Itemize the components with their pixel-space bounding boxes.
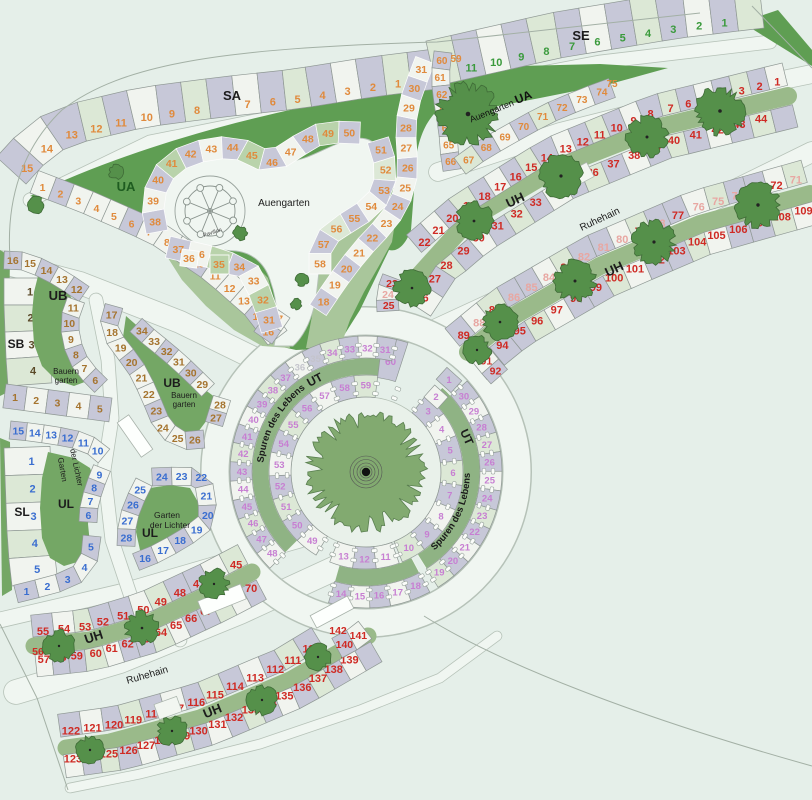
svg-text:18: 18 [318, 296, 330, 308]
svg-text:27: 27 [482, 440, 493, 451]
svg-text:70: 70 [518, 122, 530, 133]
svg-text:52: 52 [275, 482, 286, 493]
svg-text:12: 12 [62, 433, 74, 445]
svg-text:4: 4 [93, 203, 99, 215]
svg-text:115: 115 [206, 690, 224, 702]
svg-text:111: 111 [284, 655, 301, 667]
svg-text:18: 18 [410, 581, 421, 592]
svg-text:66: 66 [185, 613, 197, 625]
svg-text:121: 121 [83, 723, 101, 735]
svg-text:39: 39 [147, 195, 159, 207]
svg-text:27: 27 [122, 516, 134, 528]
svg-text:16: 16 [7, 255, 19, 267]
svg-text:58: 58 [314, 259, 326, 271]
svg-text:56: 56 [302, 403, 313, 414]
svg-text:38: 38 [149, 216, 161, 228]
svg-text:7: 7 [81, 363, 87, 375]
svg-text:27: 27 [210, 412, 222, 424]
svg-text:29: 29 [469, 406, 480, 417]
svg-text:4: 4 [439, 425, 445, 436]
svg-text:2: 2 [756, 81, 762, 93]
svg-text:62: 62 [436, 90, 448, 101]
svg-text:16: 16 [510, 172, 522, 184]
svg-text:37: 37 [280, 373, 291, 384]
svg-text:77: 77 [672, 210, 684, 222]
svg-text:6: 6 [129, 219, 135, 231]
svg-text:73: 73 [576, 95, 588, 106]
svg-text:41: 41 [166, 158, 178, 170]
svg-text:48: 48 [267, 549, 278, 560]
svg-text:45: 45 [230, 560, 242, 572]
svg-text:120: 120 [105, 720, 123, 732]
svg-text:132: 132 [225, 712, 243, 724]
svg-text:8: 8 [91, 482, 97, 494]
svg-text:135: 135 [275, 691, 293, 703]
svg-text:10: 10 [611, 122, 623, 134]
svg-text:72: 72 [770, 180, 782, 192]
svg-text:19: 19 [191, 524, 203, 536]
svg-text:12: 12 [90, 123, 102, 135]
svg-text:3: 3 [28, 340, 34, 352]
svg-text:41: 41 [690, 130, 702, 142]
svg-text:11: 11 [465, 63, 477, 75]
svg-text:13: 13 [45, 430, 57, 442]
svg-text:26: 26 [484, 458, 495, 469]
svg-text:33: 33 [530, 197, 542, 209]
svg-text:5: 5 [97, 403, 103, 415]
svg-text:106: 106 [729, 224, 747, 236]
svg-text:92: 92 [490, 366, 502, 378]
svg-text:7: 7 [667, 103, 673, 115]
svg-text:3: 3 [425, 406, 430, 417]
svg-text:24: 24 [156, 471, 168, 483]
svg-text:21: 21 [432, 225, 444, 237]
svg-text:60: 60 [90, 648, 102, 660]
svg-text:28: 28 [400, 122, 412, 134]
svg-text:7: 7 [245, 99, 251, 111]
svg-text:2: 2 [696, 21, 702, 33]
svg-text:113: 113 [246, 673, 264, 685]
svg-text:61: 61 [435, 73, 447, 84]
svg-text:1: 1 [12, 392, 18, 404]
svg-text:29: 29 [196, 379, 208, 391]
svg-text:24: 24 [392, 201, 404, 213]
svg-text:20: 20 [202, 510, 214, 522]
svg-text:30: 30 [459, 391, 470, 402]
svg-text:1: 1 [395, 79, 401, 91]
svg-text:2: 2 [370, 82, 376, 94]
svg-text:45: 45 [246, 150, 258, 162]
svg-text:17: 17 [157, 545, 169, 557]
svg-text:67: 67 [463, 155, 475, 166]
svg-text:126: 126 [119, 745, 137, 757]
svg-text:1: 1 [446, 375, 452, 386]
svg-text:10: 10 [92, 446, 104, 458]
svg-text:30: 30 [185, 368, 197, 380]
svg-text:70: 70 [245, 583, 257, 595]
svg-text:4: 4 [76, 401, 82, 413]
svg-text:8: 8 [438, 512, 443, 523]
svg-text:32: 32 [257, 294, 269, 306]
svg-text:114: 114 [226, 681, 245, 693]
svg-text:1: 1 [24, 586, 30, 598]
svg-text:26: 26 [127, 500, 139, 512]
svg-text:26: 26 [402, 163, 414, 175]
svg-text:garten: garten [55, 376, 78, 385]
svg-text:13: 13 [56, 274, 68, 286]
svg-text:UB: UB [163, 376, 181, 390]
svg-text:11: 11 [594, 129, 606, 141]
svg-text:17: 17 [106, 310, 118, 322]
svg-text:51: 51 [281, 502, 292, 513]
svg-text:96: 96 [531, 316, 543, 328]
svg-text:1: 1 [722, 18, 728, 30]
svg-text:SE: SE [572, 28, 590, 43]
svg-text:11: 11 [381, 552, 392, 563]
svg-text:Bauern: Bauern [171, 391, 197, 400]
svg-text:37: 37 [607, 158, 619, 170]
svg-text:25: 25 [172, 433, 184, 445]
svg-text:55: 55 [288, 420, 299, 431]
svg-text:97: 97 [551, 304, 563, 316]
svg-text:34: 34 [233, 262, 245, 274]
svg-text:20: 20 [446, 213, 458, 225]
svg-text:3: 3 [344, 86, 350, 98]
svg-text:9: 9 [68, 334, 74, 346]
svg-text:57: 57 [318, 239, 330, 251]
svg-text:36: 36 [295, 363, 306, 374]
svg-text:17: 17 [494, 181, 506, 193]
svg-text:28: 28 [440, 260, 452, 272]
svg-text:18: 18 [478, 191, 490, 203]
svg-text:71: 71 [790, 174, 802, 186]
svg-text:28: 28 [121, 532, 133, 544]
svg-text:19: 19 [434, 568, 445, 579]
svg-text:28: 28 [476, 423, 487, 434]
svg-text:SA: SA [223, 88, 242, 103]
svg-text:6: 6 [685, 99, 691, 111]
svg-text:31: 31 [415, 64, 427, 76]
svg-text:25: 25 [484, 476, 495, 487]
svg-text:33: 33 [148, 336, 160, 348]
svg-text:27: 27 [429, 274, 441, 286]
svg-text:48: 48 [302, 134, 314, 146]
svg-text:58: 58 [339, 383, 350, 394]
svg-text:43: 43 [237, 467, 248, 478]
svg-text:41: 41 [242, 432, 253, 443]
svg-text:6: 6 [85, 510, 91, 522]
svg-text:4: 4 [30, 366, 37, 378]
svg-text:15: 15 [525, 162, 537, 174]
svg-text:32: 32 [161, 346, 173, 358]
svg-text:23: 23 [477, 511, 488, 522]
svg-text:3: 3 [670, 24, 676, 36]
svg-text:34: 34 [136, 325, 148, 337]
svg-text:8: 8 [73, 349, 79, 361]
svg-text:18: 18 [174, 535, 186, 547]
svg-text:13: 13 [560, 143, 572, 155]
svg-text:127: 127 [137, 740, 155, 752]
svg-text:51: 51 [375, 145, 387, 157]
svg-text:4: 4 [319, 90, 326, 102]
svg-text:SB: SB [8, 337, 25, 351]
svg-text:23: 23 [150, 406, 162, 418]
svg-text:2: 2 [57, 189, 63, 201]
svg-text:8: 8 [194, 105, 200, 117]
svg-text:24: 24 [482, 494, 493, 505]
svg-text:15: 15 [24, 258, 36, 270]
svg-text:2: 2 [44, 581, 50, 593]
svg-text:42: 42 [238, 449, 249, 460]
svg-text:119: 119 [124, 715, 142, 727]
svg-text:10: 10 [63, 318, 75, 330]
svg-text:9: 9 [424, 530, 429, 541]
svg-text:9: 9 [169, 109, 175, 121]
svg-text:1: 1 [28, 456, 34, 468]
svg-text:3: 3 [30, 511, 36, 523]
svg-text:69: 69 [499, 133, 511, 144]
svg-text:19: 19 [329, 280, 341, 292]
svg-text:7: 7 [87, 496, 93, 508]
svg-text:32: 32 [362, 343, 373, 354]
svg-text:16: 16 [139, 553, 151, 565]
svg-text:10: 10 [141, 112, 153, 124]
svg-text:27: 27 [400, 143, 412, 155]
svg-text:21: 21 [201, 490, 213, 502]
svg-text:45: 45 [242, 502, 253, 513]
svg-text:14: 14 [29, 427, 41, 439]
svg-text:31: 31 [173, 357, 185, 369]
svg-text:1: 1 [40, 182, 46, 194]
svg-text:4: 4 [32, 538, 39, 550]
svg-text:21: 21 [136, 372, 148, 384]
svg-text:1: 1 [27, 287, 33, 299]
svg-text:6: 6 [450, 468, 455, 479]
svg-text:72: 72 [556, 103, 568, 114]
svg-text:3: 3 [65, 574, 71, 586]
svg-text:14: 14 [41, 144, 54, 156]
svg-text:46: 46 [266, 157, 278, 169]
svg-text:105: 105 [707, 230, 725, 242]
svg-text:21: 21 [353, 248, 365, 260]
svg-text:59: 59 [450, 54, 462, 65]
svg-text:142: 142 [329, 625, 347, 637]
svg-text:81: 81 [598, 242, 610, 254]
svg-text:141: 141 [350, 630, 368, 642]
svg-text:36: 36 [183, 253, 195, 265]
svg-text:garten: garten [173, 400, 196, 409]
svg-text:9: 9 [518, 51, 524, 63]
svg-text:131: 131 [208, 719, 226, 731]
svg-text:53: 53 [274, 460, 285, 471]
svg-text:76: 76 [693, 202, 705, 214]
svg-text:24: 24 [382, 289, 394, 301]
svg-text:UL: UL [58, 497, 74, 511]
svg-text:38: 38 [268, 386, 279, 397]
svg-text:7: 7 [447, 491, 452, 502]
svg-text:68: 68 [481, 143, 493, 154]
svg-text:20: 20 [448, 556, 459, 567]
svg-text:50: 50 [292, 521, 303, 532]
svg-text:11: 11 [115, 118, 127, 130]
svg-text:56: 56 [331, 223, 343, 235]
svg-text:109: 109 [794, 205, 812, 217]
svg-text:54: 54 [365, 201, 377, 213]
svg-text:54: 54 [278, 439, 289, 450]
svg-text:30: 30 [409, 83, 421, 95]
svg-text:34: 34 [327, 348, 338, 359]
svg-text:49: 49 [322, 128, 334, 140]
svg-text:1: 1 [774, 77, 780, 89]
svg-text:22: 22 [418, 237, 430, 249]
svg-text:Bauern: Bauern [53, 367, 79, 376]
svg-text:3: 3 [739, 85, 745, 97]
svg-text:32: 32 [511, 209, 523, 221]
svg-text:61: 61 [106, 643, 118, 655]
svg-text:44: 44 [227, 142, 239, 154]
svg-text:33: 33 [248, 275, 260, 287]
svg-text:31: 31 [380, 345, 391, 356]
svg-text:13: 13 [66, 129, 78, 141]
svg-text:6: 6 [270, 97, 276, 109]
svg-text:49: 49 [307, 536, 318, 547]
svg-text:42: 42 [185, 148, 197, 160]
svg-text:10: 10 [404, 543, 415, 554]
svg-text:101: 101 [626, 263, 644, 275]
svg-text:43: 43 [206, 144, 218, 156]
svg-text:2: 2 [433, 392, 438, 403]
svg-text:44: 44 [238, 485, 249, 496]
svg-text:35: 35 [213, 259, 225, 271]
svg-text:22: 22 [195, 472, 207, 484]
svg-text:15: 15 [355, 591, 366, 602]
svg-text:53: 53 [378, 185, 390, 197]
svg-text:80: 80 [616, 234, 628, 246]
svg-text:4: 4 [82, 562, 88, 574]
svg-text:71: 71 [537, 112, 549, 123]
svg-text:65: 65 [170, 620, 182, 632]
svg-text:35: 35 [310, 354, 321, 365]
svg-text:86: 86 [508, 292, 520, 304]
svg-text:5: 5 [34, 564, 40, 576]
svg-text:12: 12 [224, 283, 236, 295]
svg-text:40: 40 [152, 175, 164, 187]
svg-text:122: 122 [62, 726, 80, 738]
svg-text:19: 19 [115, 343, 127, 355]
svg-text:12: 12 [359, 554, 370, 565]
svg-text:26: 26 [189, 435, 201, 447]
svg-text:130: 130 [189, 725, 207, 737]
svg-text:59: 59 [361, 380, 372, 391]
svg-text:UB: UB [49, 288, 68, 303]
svg-text:8: 8 [543, 46, 549, 58]
svg-text:2: 2 [33, 395, 39, 407]
svg-text:52: 52 [380, 165, 392, 177]
svg-text:48: 48 [174, 588, 186, 600]
svg-text:5: 5 [448, 446, 454, 457]
svg-text:29: 29 [403, 103, 415, 115]
svg-text:5: 5 [111, 211, 117, 223]
svg-text:15: 15 [21, 163, 33, 175]
svg-text:11: 11 [68, 302, 79, 314]
svg-text:20: 20 [126, 357, 138, 369]
svg-text:55: 55 [349, 213, 361, 225]
svg-text:94: 94 [496, 340, 509, 352]
svg-text:75: 75 [712, 196, 724, 208]
svg-text:17: 17 [392, 587, 403, 598]
svg-text:60: 60 [436, 56, 448, 67]
svg-text:31: 31 [263, 315, 275, 327]
svg-text:6: 6 [594, 37, 600, 49]
svg-text:11: 11 [78, 437, 89, 449]
svg-text:SL: SL [14, 505, 29, 519]
svg-text:5: 5 [620, 32, 626, 44]
svg-text:Auengarten: Auengarten [258, 198, 310, 209]
svg-text:40: 40 [668, 135, 680, 147]
svg-text:22: 22 [469, 527, 480, 538]
svg-text:9: 9 [96, 469, 102, 481]
svg-text:5: 5 [88, 542, 94, 554]
svg-text:der Lichter: der Lichter [150, 520, 190, 530]
svg-text:25: 25 [399, 183, 411, 195]
svg-text:28: 28 [214, 399, 226, 411]
svg-text:23: 23 [176, 471, 188, 483]
svg-text:50: 50 [343, 127, 355, 139]
svg-text:25: 25 [134, 484, 146, 496]
svg-text:4: 4 [645, 28, 652, 40]
svg-text:46: 46 [248, 519, 259, 530]
svg-text:21: 21 [460, 542, 471, 553]
svg-text:85: 85 [525, 282, 537, 294]
svg-text:22: 22 [367, 232, 379, 244]
svg-text:51: 51 [117, 610, 129, 622]
svg-text:22: 22 [143, 389, 155, 401]
svg-text:49: 49 [155, 596, 167, 608]
svg-text:39: 39 [257, 400, 268, 411]
svg-text:44: 44 [755, 114, 768, 126]
svg-text:25: 25 [383, 300, 395, 312]
svg-text:3: 3 [75, 195, 81, 207]
svg-text:33: 33 [344, 345, 355, 356]
svg-text:12: 12 [577, 136, 589, 148]
svg-text:23: 23 [381, 218, 393, 230]
svg-text:47: 47 [256, 534, 267, 545]
svg-text:10: 10 [490, 57, 502, 69]
svg-text:13: 13 [338, 552, 349, 563]
svg-text:112: 112 [266, 664, 284, 676]
svg-text:2: 2 [29, 484, 35, 496]
svg-text:5: 5 [294, 94, 300, 106]
svg-text:12: 12 [71, 284, 83, 296]
svg-text:Garten: Garten [154, 510, 180, 520]
svg-text:14: 14 [41, 265, 53, 277]
svg-text:3: 3 [54, 398, 60, 410]
svg-text:13: 13 [238, 296, 250, 308]
svg-text:24: 24 [157, 423, 169, 435]
svg-text:47: 47 [285, 146, 297, 158]
svg-text:57: 57 [319, 391, 330, 402]
svg-text:15: 15 [12, 426, 24, 438]
svg-text:18: 18 [106, 327, 118, 339]
svg-text:UA: UA [117, 179, 136, 194]
svg-text:29: 29 [457, 246, 469, 258]
svg-text:20: 20 [341, 263, 353, 275]
svg-text:40: 40 [248, 415, 259, 426]
svg-text:6: 6 [92, 375, 98, 387]
svg-text:104: 104 [688, 237, 707, 249]
svg-text:16: 16 [374, 591, 385, 602]
svg-text:75: 75 [606, 79, 618, 90]
